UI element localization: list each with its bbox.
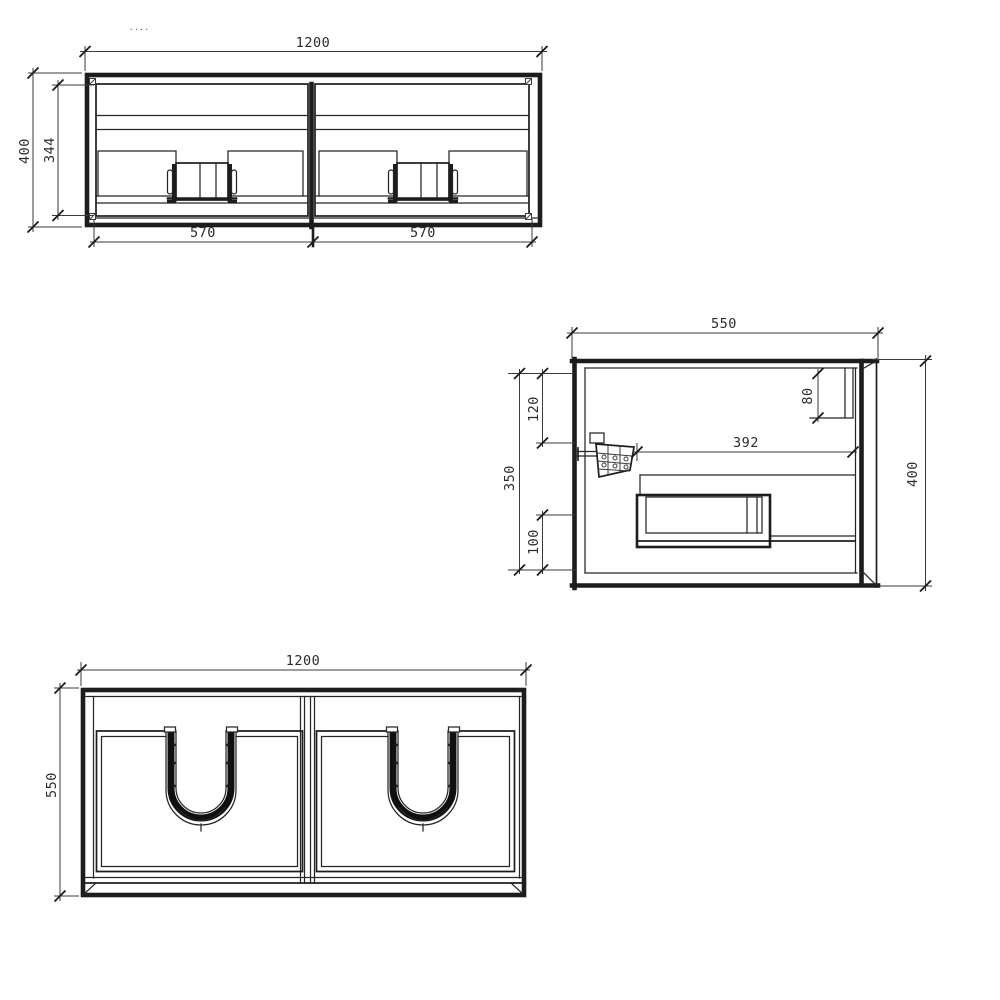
side-bottom-offset-label: 100	[526, 529, 542, 555]
artifact-mark: ····	[130, 25, 151, 36]
side-height-label: 400	[905, 461, 921, 487]
side-top-offset-label: 120	[526, 396, 542, 422]
technical-drawing: ····	[0, 0, 1000, 1000]
front-left-door-width-label: 570	[190, 225, 216, 241]
side-interior-height-label: 350	[502, 465, 518, 491]
front-left-drawer-bracket	[167, 163, 237, 204]
front-inner-height-label: 344	[42, 137, 58, 163]
plan-depth-label: 550	[44, 772, 60, 798]
plan-view: 1200 550	[44, 653, 532, 902]
front-right-drawer-bracket	[388, 163, 458, 204]
side-drawer-depth-label: 392	[733, 435, 759, 451]
plan-width-label: 1200	[286, 653, 321, 669]
side-top-rail-label: 80	[800, 387, 816, 404]
front-width-label: 1200	[296, 35, 331, 51]
front-height-label: 400	[17, 138, 33, 164]
front-right-door-width-label: 570	[410, 225, 436, 241]
side-depth-label: 550	[711, 316, 737, 332]
